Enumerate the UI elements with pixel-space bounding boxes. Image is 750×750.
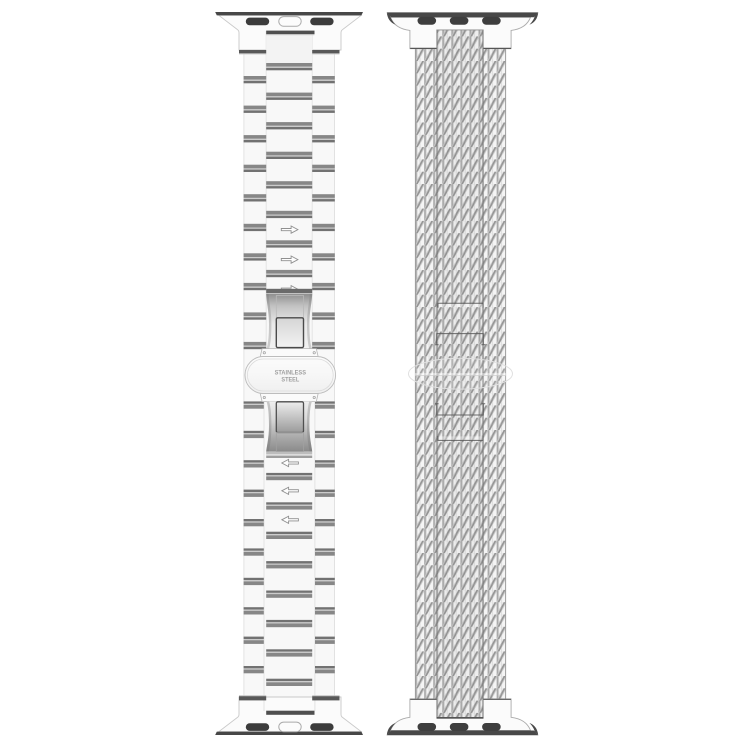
svg-text:STAINLESS: STAINLESS	[275, 370, 307, 377]
svg-text:STEEL: STEEL	[281, 377, 299, 384]
